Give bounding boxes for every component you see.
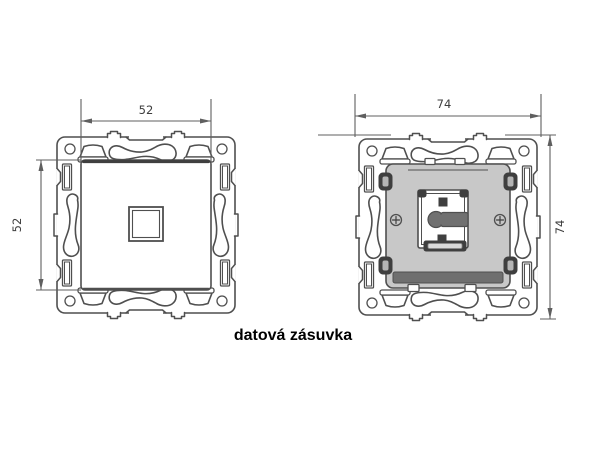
front-view-figure <box>54 132 238 319</box>
dim-label-right-height: 74 <box>553 220 567 235</box>
technical-drawing-page: 52 52 74 74 datová zásuvka <box>0 0 600 450</box>
screw-icon <box>391 215 402 226</box>
technical-drawing: 52 52 74 74 datová zásuvka <box>0 0 600 450</box>
product-caption: datová zásuvka <box>234 327 352 344</box>
screw-icon <box>495 215 506 226</box>
dim-label-right-width: 74 <box>437 97 452 111</box>
dim-label-left-height: 52 <box>10 218 24 233</box>
dimension-width-right: 74 <box>355 94 541 137</box>
mounting-frame-figure <box>356 134 540 321</box>
dim-label-left-width: 52 <box>139 103 154 117</box>
keystone-jack <box>418 190 468 251</box>
